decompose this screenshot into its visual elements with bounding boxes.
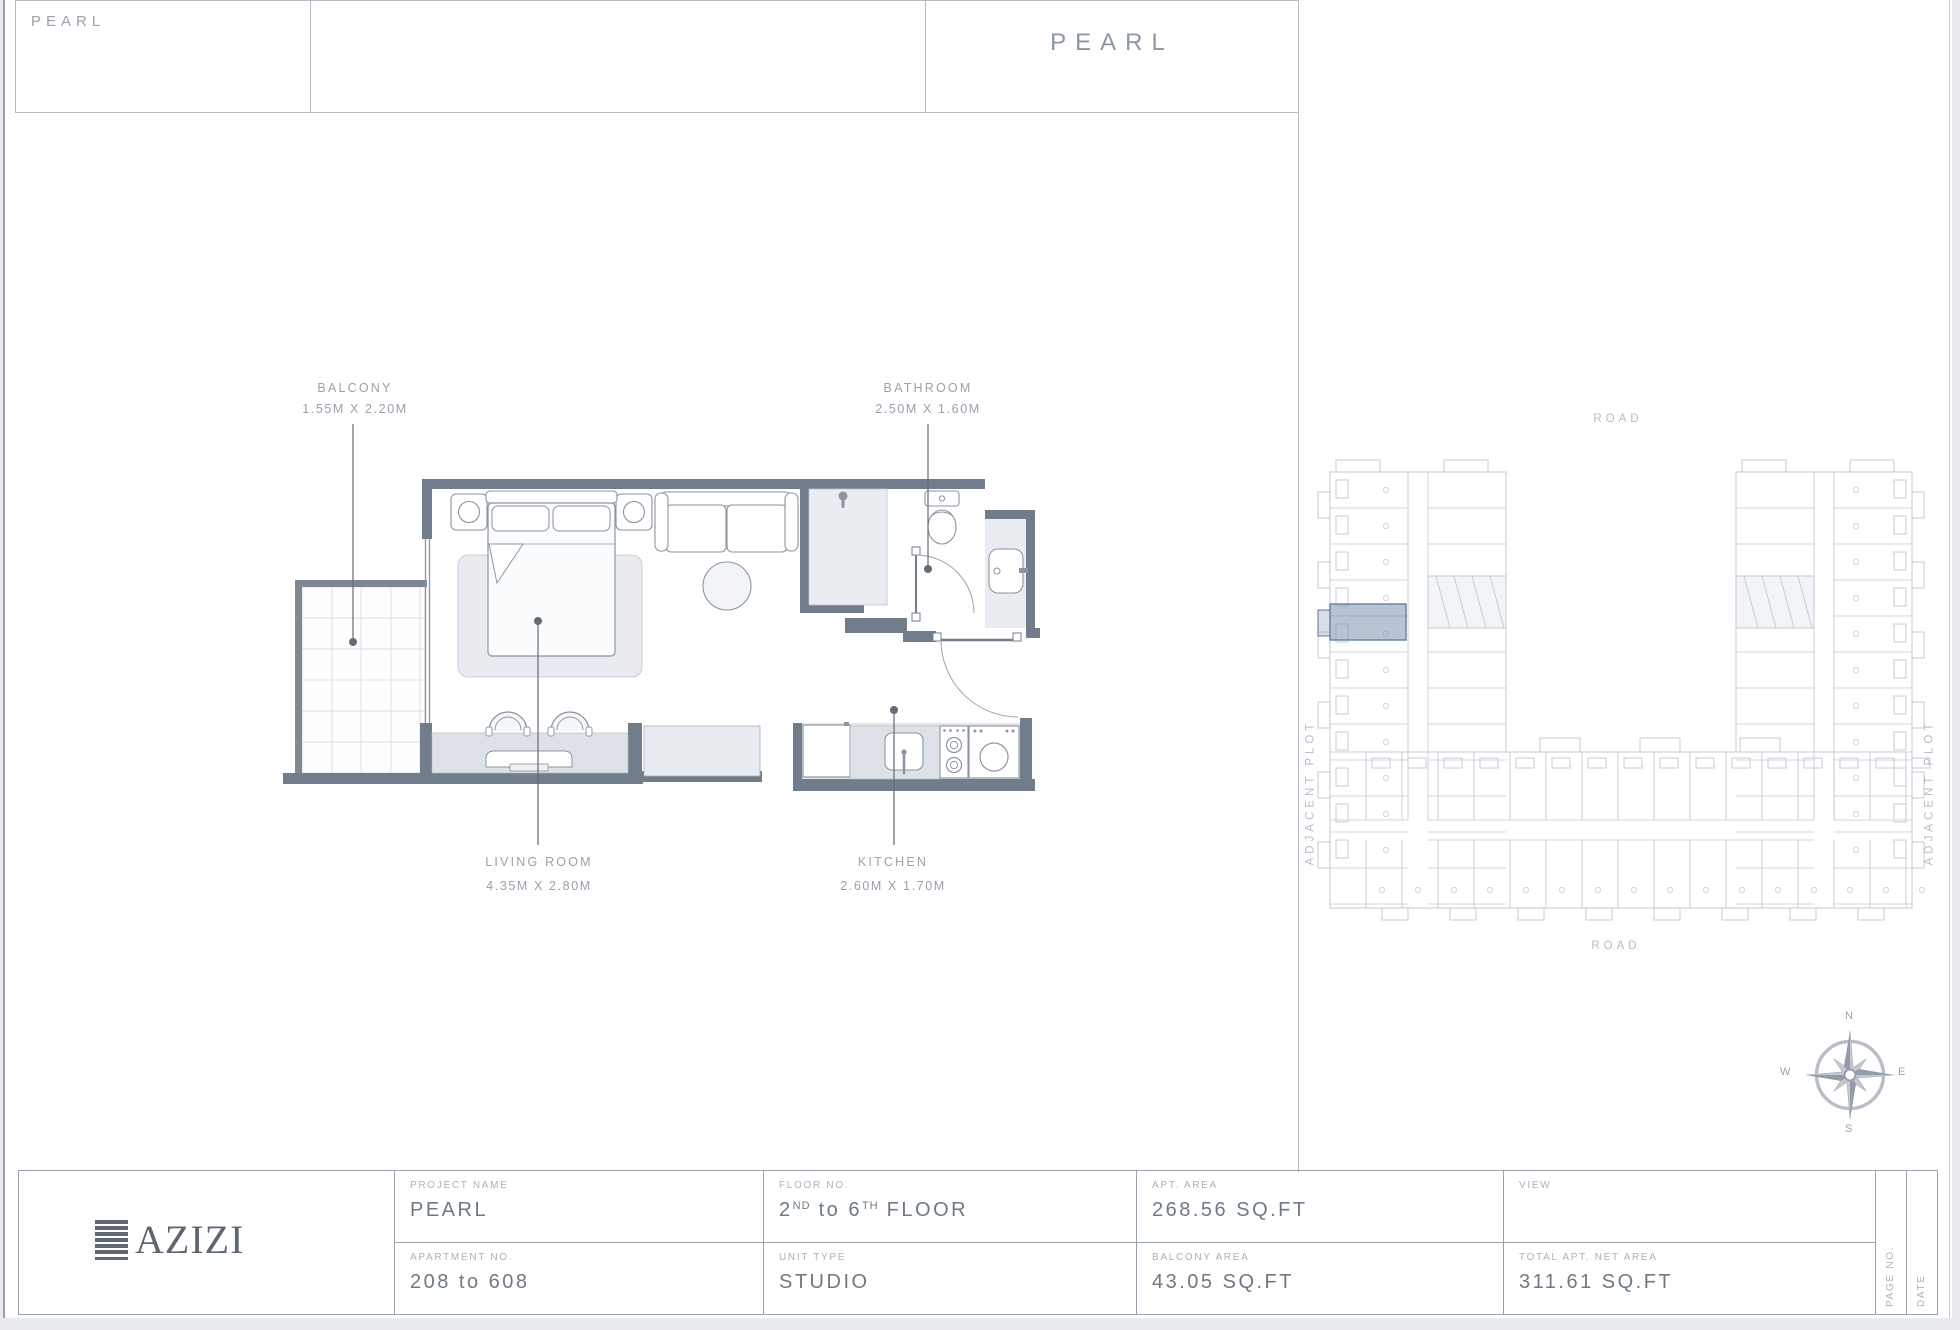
room-dims-bathroom: 2.50M X 1.60M <box>828 402 1028 416</box>
date-label: DATE <box>1906 1170 1937 1315</box>
room-dims-balcony: 1.55M X 2.20M <box>255 402 455 416</box>
azizi-logo-text: AZIZI <box>135 1220 244 1260</box>
room-dims-living: 4.35M X 2.80M <box>439 879 639 893</box>
key-plan-svg <box>1300 400 1960 960</box>
adjacent-plot-label-left: ADJACENT PLOT <box>1305 683 1320 903</box>
road-label-top: ROAD <box>1538 413 1698 425</box>
header-box-right: PEARL <box>925 0 1299 113</box>
room-dims-kitchen: 2.60M X 1.70M <box>793 879 993 893</box>
page-title: PEARL <box>926 29 1298 57</box>
compass-n: N <box>1845 1010 1854 1022</box>
azizi-logo-icon <box>95 1220 128 1260</box>
section-divider <box>1298 0 1299 1172</box>
toilet-tank <box>925 491 959 506</box>
road-label-bottom: ROAD <box>1536 940 1696 952</box>
bathroom-door-swing <box>916 555 974 613</box>
bed-headboard <box>486 491 617 503</box>
unit-type-label: UNIT TYPE <box>779 1252 846 1263</box>
entry-closet <box>644 726 760 776</box>
pillow <box>492 506 549 531</box>
balcony-area-label: BALCONY AREA <box>1152 1252 1249 1263</box>
compass-s: S <box>1845 1123 1853 1135</box>
room-label-living: LIVING ROOM <box>439 855 639 869</box>
view-label: VIEW <box>1519 1180 1551 1191</box>
header-box-middle <box>310 0 926 113</box>
azizi-logo: AZIZI <box>95 1220 244 1260</box>
total-area-label: TOTAL APT. NET AREA <box>1519 1252 1658 1263</box>
total-area-value: 311.61 SQ.FT <box>1519 1271 1673 1294</box>
project-name-label: PROJECT NAME <box>410 1180 509 1191</box>
nightstand-left <box>451 494 487 530</box>
shower-stall <box>809 489 887 605</box>
compass-e: E <box>1898 1066 1906 1078</box>
chair <box>486 712 530 736</box>
floor-no-value: 2ND to 6TH FLOOR <box>779 1199 968 1222</box>
project-name-value: PEARL <box>410 1199 488 1222</box>
kitchen-fixtures <box>644 722 1020 779</box>
entrance-door <box>933 633 1021 717</box>
balcony-window <box>426 539 430 723</box>
chair <box>548 712 592 736</box>
nightstand-right <box>616 494 652 530</box>
header-small-title: PEARL <box>31 13 105 30</box>
fridge <box>803 725 850 777</box>
page-no-label: PAGE NO. <box>1875 1170 1906 1315</box>
compass-w: W <box>1780 1066 1791 1078</box>
header-box-left: PEARL <box>15 0 311 113</box>
balcony-area <box>295 580 427 776</box>
room-label-kitchen: KITCHEN <box>793 855 993 869</box>
adjacent-plot-label-right: ADJACENT PLOT <box>1924 683 1939 903</box>
floor-no-label: FLOOR NO. <box>779 1180 849 1191</box>
unit-type-value: STUDIO <box>779 1271 870 1294</box>
room-label-balcony: BALCONY <box>255 381 455 395</box>
round-table <box>703 562 751 610</box>
apartment-no-value: 208 to 608 <box>410 1271 530 1294</box>
washing-machine <box>969 726 1019 778</box>
apt-area-label: APT. AREA <box>1152 1180 1218 1191</box>
compass-rose-icon <box>1790 1015 1910 1135</box>
room-label-bathroom: BATHROOM <box>828 381 1028 395</box>
apartment-no-label: APARTMENT NO. <box>410 1252 513 1263</box>
highlighted-unit <box>1330 604 1406 640</box>
unit-floor-plan <box>220 420 1060 900</box>
pillow <box>553 506 610 531</box>
apt-area-value: 268.56 SQ.FT <box>1152 1199 1308 1222</box>
balcony-area-value: 43.05 SQ.FT <box>1152 1271 1294 1294</box>
sofa <box>655 492 798 552</box>
